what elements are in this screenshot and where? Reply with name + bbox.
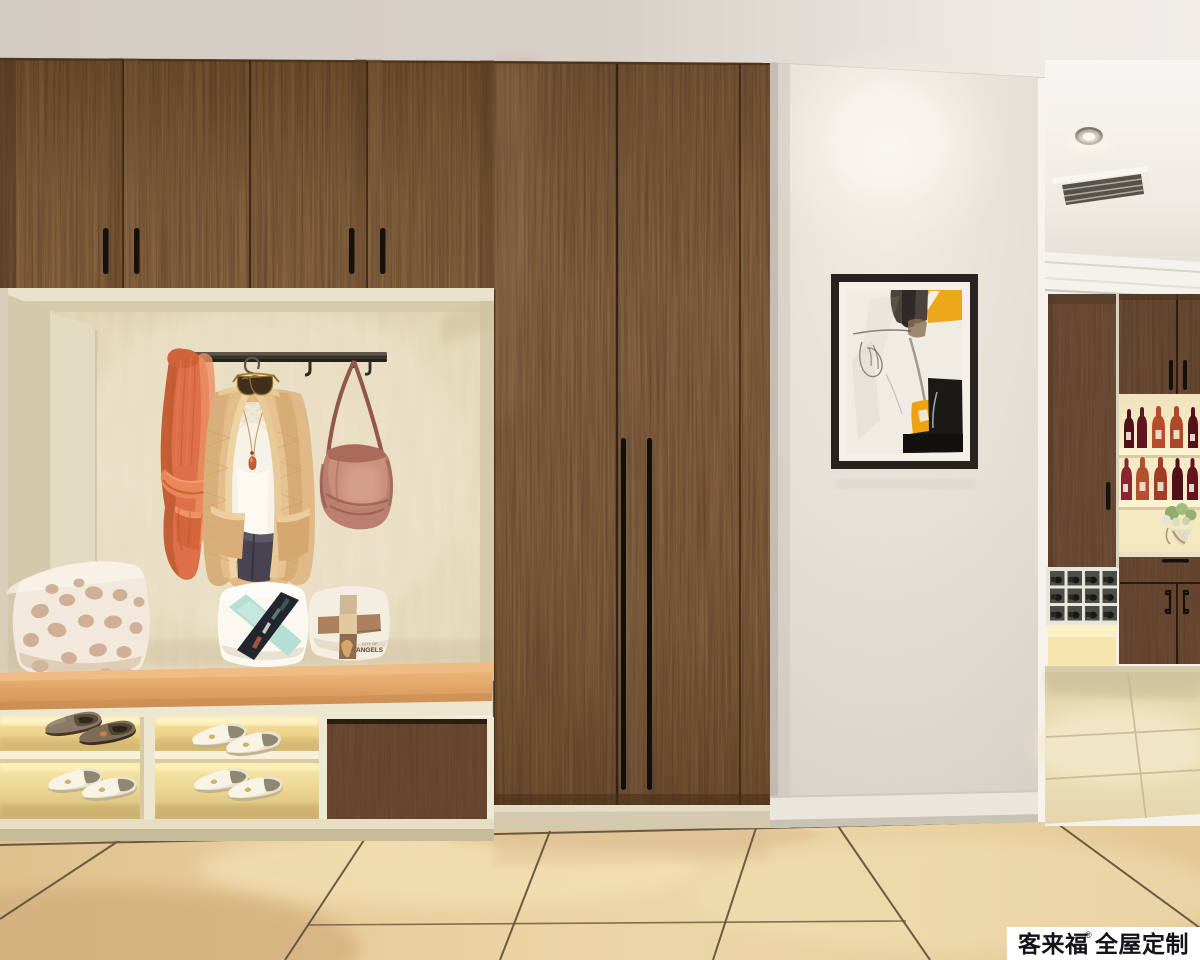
svg-text:®: ®: [1085, 930, 1092, 940]
svg-text:客来福: 客来福: [1018, 931, 1089, 957]
svg-text:ANGELS: ANGELS: [356, 647, 384, 654]
svg-text:全屋定制: 全屋定制: [1094, 931, 1189, 957]
svg-text:CITY OF: CITY OF: [362, 641, 378, 646]
